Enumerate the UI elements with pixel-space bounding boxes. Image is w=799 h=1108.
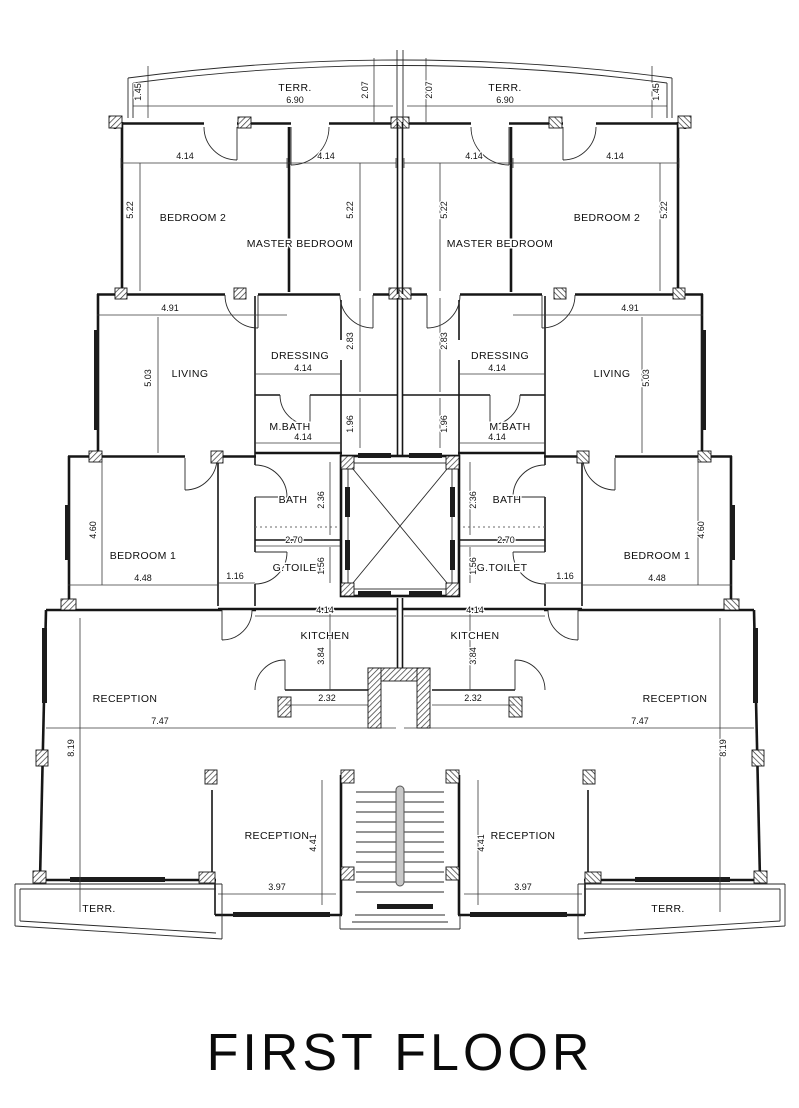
dim-2.83: 2.83 (439, 332, 449, 350)
room-label-kitchen-left: KITCHEN (301, 630, 350, 642)
dim-3.84: 3.84 (468, 647, 478, 665)
dim-5.22: 5.22 (125, 201, 135, 219)
dim-4.60: 4.60 (696, 521, 706, 539)
dim-4.14: 4.14 (176, 151, 194, 161)
dim-2.07: 2.07 (424, 81, 434, 99)
room-label-living-left: LIVING (172, 368, 209, 380)
room-label-bath-right: BATH (493, 494, 522, 506)
dim-4.41: 4.41 (476, 834, 486, 852)
room-label-bedroom2-left: BEDROOM 2 (160, 212, 227, 224)
dim-8.19: 8.19 (66, 739, 76, 757)
dim-6.90: 6.90 (496, 95, 514, 105)
room-label-master-bedroom-right: MASTER BEDROOM (447, 238, 554, 250)
room-label-reception-left: RECEPTION (93, 693, 158, 705)
dim-4.91: 4.91 (161, 303, 179, 313)
dim-4.48: 4.48 (134, 573, 152, 583)
dim-2.70: 2.70 (285, 535, 303, 545)
dim-4.14: 4.14 (488, 363, 506, 373)
room-label-terrace-bottom-left: TERR. (82, 903, 116, 915)
dim-7.47: 7.47 (631, 716, 649, 726)
dim-4.48: 4.48 (648, 573, 666, 583)
dim-1.45: 1.45 (651, 83, 661, 101)
room-label-reception-lower-right: RECEPTION (491, 830, 556, 842)
dim-6.90: 6.90 (286, 95, 304, 105)
dim-5.22: 5.22 (439, 201, 449, 219)
dim-4.14: 4.14 (465, 151, 483, 161)
drawing-sheet: TERR.TERR.BEDROOM 2BEDROOM 2MASTER BEDRO… (0, 0, 799, 1108)
dim-2.83: 2.83 (345, 332, 355, 350)
dim-1.16: 1.16 (226, 571, 244, 581)
dim-4.41: 4.41 (308, 834, 318, 852)
dim-4.14: 4.14 (294, 363, 312, 373)
dim-1.16: 1.16 (556, 571, 574, 581)
dim-1.45: 1.45 (133, 83, 143, 101)
dim-2.36: 2.36 (316, 491, 326, 509)
room-label-bath-left: BATH (279, 494, 308, 506)
dim-3.97: 3.97 (514, 882, 532, 892)
room-label-kitchen-right: KITCHEN (451, 630, 500, 642)
dim-4.14: 4.14 (317, 151, 335, 161)
dim-4.14: 4.14 (466, 605, 484, 615)
dim-1.96: 1.96 (439, 415, 449, 433)
room-label-master-bedroom-left: MASTER BEDROOM (247, 238, 354, 250)
dim-3.97: 3.97 (268, 882, 286, 892)
dim-1.96: 1.96 (345, 415, 355, 433)
dim-8.19: 8.19 (718, 739, 728, 757)
dim-1.56: 1.56 (468, 557, 478, 575)
dim-4.91: 4.91 (621, 303, 639, 313)
room-label-living-right: LIVING (594, 368, 631, 380)
room-label-bedroom1-right: BEDROOM 1 (624, 550, 691, 562)
floor-plan-canvas: TERR.TERR.BEDROOM 2BEDROOM 2MASTER BEDRO… (0, 0, 799, 1108)
room-label-reception-right: RECEPTION (643, 693, 708, 705)
dim-7.47: 7.47 (151, 716, 169, 726)
room-label-bedroom2-right: BEDROOM 2 (574, 212, 641, 224)
dim-4.14: 4.14 (488, 432, 506, 442)
dim-4.60: 4.60 (88, 521, 98, 539)
dim-4.14: 4.14 (316, 605, 334, 615)
dim-4.14: 4.14 (294, 432, 312, 442)
room-label-terrace-top-right: TERR. (488, 82, 522, 94)
room-label-terrace-bottom-right: TERR. (651, 903, 685, 915)
dim-3.84: 3.84 (316, 647, 326, 665)
dim-2.07: 2.07 (360, 81, 370, 99)
room-label-bedroom1-left: BEDROOM 1 (110, 550, 177, 562)
dim-5.22: 5.22 (659, 201, 669, 219)
dim-2.32: 2.32 (318, 693, 336, 703)
room-label-terrace-top-left: TERR. (278, 82, 312, 94)
sheet-title: FIRST FLOOR (207, 1024, 594, 1082)
dim-1.56: 1.56 (316, 557, 326, 575)
dim-2.36: 2.36 (468, 491, 478, 509)
dim-5.03: 5.03 (143, 369, 153, 387)
room-label-gtoilet-right: G.TOILET (477, 562, 528, 574)
dim-2.70: 2.70 (497, 535, 515, 545)
dim-5.22: 5.22 (345, 201, 355, 219)
room-label-dressing-right: DRESSING (471, 350, 529, 362)
room-label-reception-lower-left: RECEPTION (245, 830, 310, 842)
dim-2.32: 2.32 (464, 693, 482, 703)
dim-4.14: 4.14 (606, 151, 624, 161)
room-label-dressing-left: DRESSING (271, 350, 329, 362)
dim-5.03: 5.03 (641, 369, 651, 387)
